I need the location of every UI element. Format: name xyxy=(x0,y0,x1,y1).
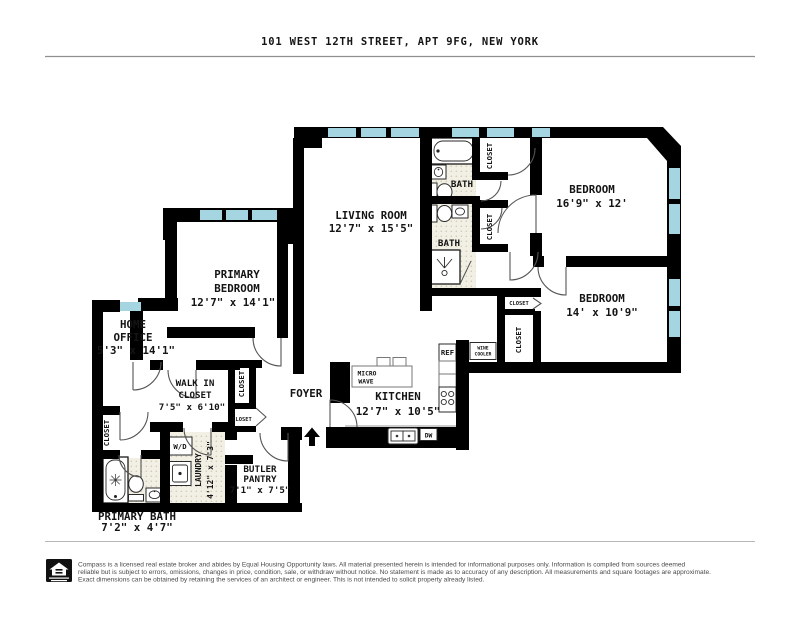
fridge-label: REF xyxy=(441,348,454,357)
living-room-label: LIVING ROOM xyxy=(335,209,407,222)
sink-icon xyxy=(452,205,468,218)
walk-in-closet-dims: 7'5" x 6'10" xyxy=(159,402,225,413)
home-office-label: OFFICE xyxy=(113,331,152,344)
door-arc xyxy=(538,267,566,295)
bathtub-icon xyxy=(431,138,476,164)
kitchen-dims: 12'7" x 10'5" xyxy=(356,405,441,418)
bedroom-right-label: BEDROOM xyxy=(579,292,625,305)
bifold-door xyxy=(533,298,541,309)
closet-label: CLOSET xyxy=(485,142,494,169)
home-office-dims: 5'3" x 14'1" xyxy=(97,344,175,357)
primary-bedroom-label: PRIMARY xyxy=(214,268,260,281)
kitchen-sink-icon xyxy=(388,428,418,444)
disclaimer-text: Compass is a licensed real estate broker… xyxy=(78,562,711,584)
butler-pantry-label: PANTRY xyxy=(243,474,277,485)
bath-lower-label: BATH xyxy=(438,238,460,249)
door-arc xyxy=(120,412,148,440)
window xyxy=(669,204,680,234)
window xyxy=(252,210,277,220)
microwave-label: MICRO xyxy=(358,371,377,378)
wine-cooler-label: COOLER xyxy=(475,352,492,358)
disclaimer-line: Exact dimensions can be obtained by reta… xyxy=(78,577,485,584)
butler-pantry-dims: 7'1" x 7'5" xyxy=(230,485,291,496)
bedroom-top-label: BEDROOM xyxy=(569,183,615,196)
closet-label: CLOSET xyxy=(485,213,494,240)
stove-icon xyxy=(439,387,456,412)
counter-box xyxy=(439,374,456,387)
window xyxy=(226,210,248,220)
window xyxy=(200,210,222,220)
window xyxy=(452,128,479,137)
toilet-icon xyxy=(431,205,452,222)
counter-box xyxy=(439,361,456,374)
window xyxy=(532,128,550,137)
walk-in-closet-label: CLOSET xyxy=(178,390,212,401)
washer-dryer-label: W/D xyxy=(173,442,187,451)
page-title: 101 WEST 12TH STREET, APT 9FG, NEW YORK xyxy=(261,36,539,48)
bedroom-top-dims: 16'9" x 12' xyxy=(556,197,628,210)
closet-label: CLOSET xyxy=(102,419,111,446)
microwave-label: WAVE xyxy=(358,379,373,386)
closet-label: CLOSET xyxy=(237,370,246,397)
entry-arrow-icon xyxy=(304,428,320,447)
primary-bath-dims: 7'2" x 4'7" xyxy=(101,521,173,534)
window xyxy=(669,311,680,337)
door-arc xyxy=(330,400,357,427)
living-room-dims: 12'7" x 15'5" xyxy=(329,222,414,235)
bifold-door xyxy=(256,408,266,426)
dishwasher-label: DW xyxy=(425,433,433,440)
bath-upper-label: BATH xyxy=(451,179,473,190)
disclaimer-line: reliable but is subject to errors, omiss… xyxy=(78,569,711,576)
laundry-dims: 4'12" x 7'3" xyxy=(206,441,215,499)
laundry-label: LAUNDRY xyxy=(194,453,203,487)
laundry-sink-icon xyxy=(169,462,191,486)
toilet-icon xyxy=(129,476,144,501)
bathtub-icon xyxy=(103,457,128,503)
floor-plan-canvas: 101 WEST 12TH STREET, APT 9FG, NEW YORK xyxy=(0,0,800,618)
disclaimer-line: Compass is a licensed real estate broker… xyxy=(78,562,686,569)
window xyxy=(669,279,680,306)
window xyxy=(120,302,141,311)
bedroom-right-dims: 14' x 10'9" xyxy=(566,306,638,319)
closet-label: CLOSET xyxy=(509,301,529,307)
home-office-label: HOME xyxy=(120,318,146,331)
walk-in-closet-label: WALK IN xyxy=(176,378,215,389)
window xyxy=(669,168,680,199)
closet-label: CLOSET xyxy=(232,417,252,423)
primary-bedroom-dims: 12'7" x 14'1" xyxy=(191,296,276,309)
primary-bedroom-label: BEDROOM xyxy=(214,282,260,295)
kitchen-label: KITCHEN xyxy=(375,390,421,403)
sink-icon xyxy=(431,165,446,179)
closet-label: CLOSET xyxy=(514,326,523,353)
window xyxy=(391,128,419,137)
equal-housing-logo xyxy=(46,559,72,582)
wine-cooler-label: WINE xyxy=(477,346,488,352)
kitchen-column xyxy=(330,362,350,403)
window xyxy=(328,128,356,137)
window xyxy=(487,128,514,137)
foyer-label: FOYER xyxy=(290,387,323,400)
door-arc xyxy=(481,181,501,201)
window xyxy=(361,128,386,137)
